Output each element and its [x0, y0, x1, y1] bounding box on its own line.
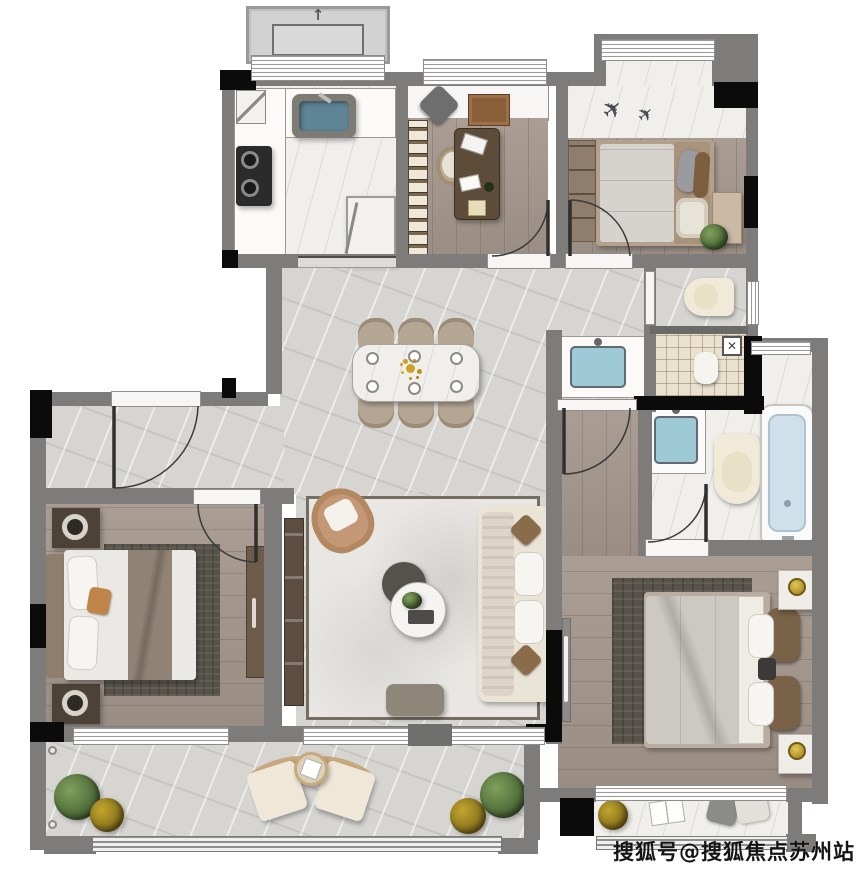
toilet-door-sill [646, 272, 654, 324]
master-lamp-bottom [788, 742, 806, 760]
bedroom1-accent-pillow [86, 586, 112, 615]
bath-window [752, 342, 810, 354]
wall-hall-west [266, 262, 282, 394]
master-lamp-top [788, 578, 806, 596]
place-setting-4 [366, 380, 379, 393]
bedroom1-window [74, 728, 228, 744]
hall-vanity-sink [570, 346, 626, 388]
wall-study-bedroom2 [556, 86, 568, 254]
guest-toilet-seat [694, 284, 718, 310]
balcony-plant-yellow-left [90, 798, 124, 832]
slider-mullion [408, 724, 452, 746]
wall-kitchen-study [396, 86, 408, 254]
study-door-sill [488, 254, 550, 268]
master-pillow-accent [758, 658, 776, 680]
bedroom1-wardrobe-handle [252, 598, 256, 628]
balcony-parapet-right [498, 838, 538, 854]
cooktop-burner-1 [241, 151, 259, 169]
desk-plant-icon [484, 182, 494, 192]
master-toilet-seat [722, 452, 752, 492]
bedroom1-pillow-2 [67, 615, 100, 670]
study-window [424, 60, 546, 84]
column-kitchen-nw [220, 70, 256, 90]
bedroom1-headboard [46, 554, 66, 678]
corridor-door-sill [558, 400, 636, 410]
master-balcony-plant [598, 800, 628, 830]
bedroom2-mattress [600, 144, 674, 242]
bedroom1-door-sill [194, 490, 260, 504]
ac-outdoor-unit [272, 24, 364, 56]
ottoman [386, 684, 444, 716]
column-entry [30, 390, 52, 438]
column-bedroom1-west [30, 604, 46, 648]
wall-bedroom1-east [264, 488, 282, 742]
bedroom2-wardrobe [568, 140, 596, 242]
wall-bath-west [638, 404, 652, 544]
desk-lamp-icon [468, 200, 486, 216]
main-balcony-railing [92, 836, 502, 852]
column-kitchen-sw [222, 250, 238, 268]
sofa-cushion-1 [514, 552, 544, 596]
column-bath-band [634, 396, 764, 410]
sofa-cushion-2 [514, 600, 544, 644]
bathtub-drain [784, 500, 791, 507]
place-setting-6 [450, 380, 463, 393]
ac-airflow-arrow-icon: ↑ [310, 6, 326, 22]
kitchen-corner-unit [236, 90, 266, 124]
study-bookshelf [408, 120, 428, 258]
floor-plan: ↑ ✈ ✈ ✕ [0, 0, 861, 872]
master-balcony-book [648, 798, 685, 826]
kitchen-window [252, 56, 384, 80]
bedroom1-lamp-bottom [62, 690, 88, 716]
study-window-tray [468, 94, 510, 126]
bedroom2-plant [700, 224, 728, 250]
watermark-text: 搜狐号@搜狐焦点苏州站 [613, 836, 855, 866]
wall-east-lower [812, 338, 828, 804]
master-vanity-sink [654, 416, 698, 464]
wall-kitchen-west [222, 86, 234, 268]
column-master-west [546, 630, 562, 726]
sofa-seat [482, 512, 514, 696]
place-setting-3 [450, 352, 463, 365]
bedroom2-bay-window [602, 40, 714, 60]
master-bath-floor-nook [762, 352, 814, 408]
bedroom1-lamp-top [62, 514, 88, 540]
bedroom1-blanket [128, 550, 172, 680]
column-hall-west [222, 378, 236, 398]
coffee-table-plant [402, 592, 422, 609]
cooktop-burner-2 [241, 179, 259, 197]
hall-vanity-faucet [594, 338, 602, 346]
bedroom2-pillow-brown [692, 152, 710, 199]
dining-centerpiece-flowers [406, 364, 415, 373]
balcony-plant-green-right [480, 772, 526, 818]
shower-partition [650, 326, 748, 334]
master-pillow-white-2 [748, 682, 774, 726]
floor-drain-mark: ✕ [722, 336, 742, 356]
bathtub-basin [768, 414, 806, 532]
corridor-floor [558, 408, 644, 556]
tv-console [284, 518, 304, 706]
master-balcony-slider [596, 786, 786, 800]
bath-door-sill [646, 540, 708, 556]
shower-fixture [694, 352, 718, 384]
bedroom1-wardrobe [246, 546, 266, 678]
balcony-parapet-left [44, 836, 96, 854]
kitchen-sliding-threshold [298, 256, 396, 268]
place-setting-1 [366, 352, 379, 365]
column-master-balcony [560, 798, 594, 836]
kitchen-sink-basin [299, 101, 349, 131]
entry-hall-floor [44, 406, 284, 492]
column-east-mid [744, 176, 758, 228]
place-setting-5 [408, 382, 421, 395]
toilet-window [748, 282, 758, 324]
master-wardrobe-handle [564, 636, 568, 702]
coffee-table-tray [408, 610, 434, 624]
place-setting-2 [408, 350, 421, 363]
column-balcony-nw [30, 722, 64, 742]
master-pillow-white-1 [748, 614, 774, 658]
master-mattress [646, 596, 740, 744]
entry-door-sill [112, 392, 200, 406]
balcony-drain-bottom [48, 820, 57, 829]
column-bedroom2-ne [714, 82, 758, 108]
balcony-drain-top [48, 746, 57, 755]
bedroom2-door-sill [566, 254, 632, 268]
